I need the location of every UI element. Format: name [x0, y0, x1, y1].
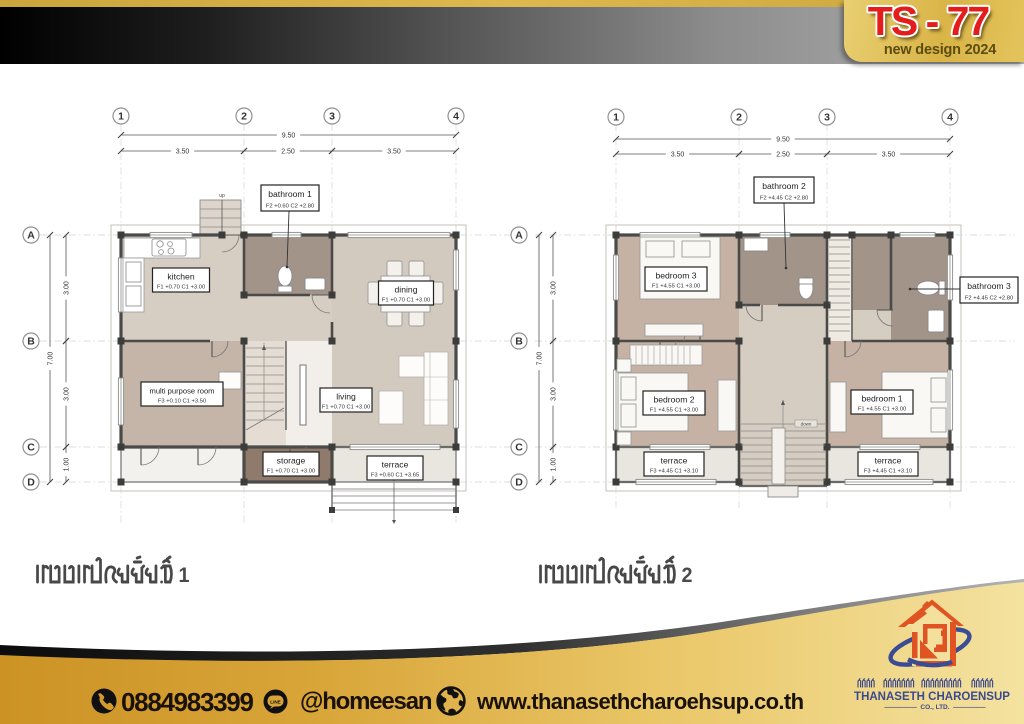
- svg-text:1.00: 1.00: [551, 458, 558, 472]
- svg-text:2.50: 2.50: [776, 152, 790, 159]
- svg-text:F2 +0.60 C2 +2.80: F2 +0.60 C2 +2.80: [266, 204, 314, 210]
- svg-text:3.00: 3.00: [551, 281, 558, 295]
- svg-text:D: D: [515, 477, 523, 489]
- svg-text:F1 +4.55 C1 +3.00: F1 +4.55 C1 +3.00: [858, 407, 906, 413]
- svg-text:living: living: [336, 391, 356, 401]
- svg-text:3.50: 3.50: [882, 152, 896, 159]
- svg-text:F1 +4.55 C1 +3.00: F1 +4.55 C1 +3.00: [652, 284, 700, 290]
- svg-text:bathroom 3: bathroom 3: [967, 281, 1011, 291]
- svg-text:F2 +4.45 C2 +2.80: F2 +4.45 C2 +2.80: [760, 196, 808, 202]
- svg-text:1.00: 1.00: [64, 458, 71, 472]
- svg-text:terrace: terrace: [661, 455, 688, 465]
- svg-text:D: D: [27, 477, 35, 489]
- svg-text:multi purpose room: multi purpose room: [150, 386, 215, 395]
- svg-text:3.00: 3.00: [64, 387, 71, 401]
- svg-text:F3 +0.60 C1 +3.65: F3 +0.60 C1 +3.65: [371, 473, 419, 479]
- svg-text:bedroom 1: bedroom 1: [861, 393, 902, 403]
- svg-text:9.50: 9.50: [776, 137, 790, 144]
- svg-text:dining: dining: [395, 284, 418, 294]
- svg-text:9.50: 9.50: [282, 133, 296, 140]
- svg-text:bedroom 3: bedroom 3: [655, 270, 696, 280]
- svg-text:F1 +0.70 C1 +3.00: F1 +0.70 C1 +3.00: [267, 469, 315, 475]
- svg-text:terrace: terrace: [875, 455, 902, 465]
- svg-text:F1 +0.70 C1 +3.00: F1 +0.70 C1 +3.00: [382, 298, 430, 304]
- svg-text:3: 3: [824, 112, 830, 124]
- svg-text:C: C: [27, 442, 35, 454]
- svg-text:F3 +4.45 C1 +3.10: F3 +4.45 C1 +3.10: [864, 469, 912, 475]
- svg-text:7.00: 7.00: [537, 352, 544, 366]
- svg-text:3.50: 3.50: [176, 149, 190, 156]
- svg-text:3.00: 3.00: [551, 387, 558, 401]
- svg-text:1: 1: [118, 111, 124, 123]
- svg-text:2: 2: [241, 111, 247, 123]
- svg-text:F1 +0.70 C1 +3.00: F1 +0.70 C1 +3.00: [322, 405, 370, 411]
- svg-text:B: B: [515, 336, 523, 348]
- svg-text:1: 1: [613, 112, 619, 124]
- svg-text:bathroom 2: bathroom 2: [762, 181, 806, 191]
- svg-text:B: B: [27, 336, 35, 348]
- svg-text:storage: storage: [277, 455, 306, 465]
- svg-text:C: C: [515, 442, 523, 454]
- svg-text:F1 +0.70 C1 +3.00: F1 +0.70 C1 +3.00: [157, 285, 205, 291]
- svg-text:4: 4: [453, 111, 459, 123]
- svg-text:7.00: 7.00: [48, 352, 55, 366]
- svg-text:3.50: 3.50: [671, 152, 685, 159]
- svg-text:A: A: [27, 230, 35, 242]
- svg-text:kitchen: kitchen: [167, 271, 194, 281]
- svg-text:up: up: [219, 193, 225, 199]
- svg-text:3.00: 3.00: [64, 281, 71, 295]
- svg-text:F3 +4.45 C1 +3.10: F3 +4.45 C1 +3.10: [650, 469, 698, 475]
- svg-text:3.50: 3.50: [387, 149, 401, 156]
- svg-text:LINE: LINE: [270, 699, 280, 704]
- svg-text:F1 +4.55 C1 +3.00: F1 +4.55 C1 +3.00: [650, 408, 698, 414]
- svg-text:4: 4: [947, 112, 953, 124]
- svg-text:A: A: [515, 230, 523, 242]
- svg-text:bedroom 2: bedroom 2: [653, 394, 694, 404]
- svg-text:down: down: [801, 422, 812, 427]
- svg-text:F2 +4.45 C2 +2.80: F2 +4.45 C2 +2.80: [965, 296, 1013, 302]
- svg-text:bathroom 1: bathroom 1: [268, 189, 312, 199]
- svg-text:3: 3: [329, 111, 335, 123]
- svg-text:F3 +0.10 C1 +3.50: F3 +0.10 C1 +3.50: [158, 399, 206, 405]
- svg-text:2.50: 2.50: [281, 149, 295, 156]
- svg-text:terrace: terrace: [382, 459, 409, 469]
- svg-text:2: 2: [736, 112, 742, 124]
